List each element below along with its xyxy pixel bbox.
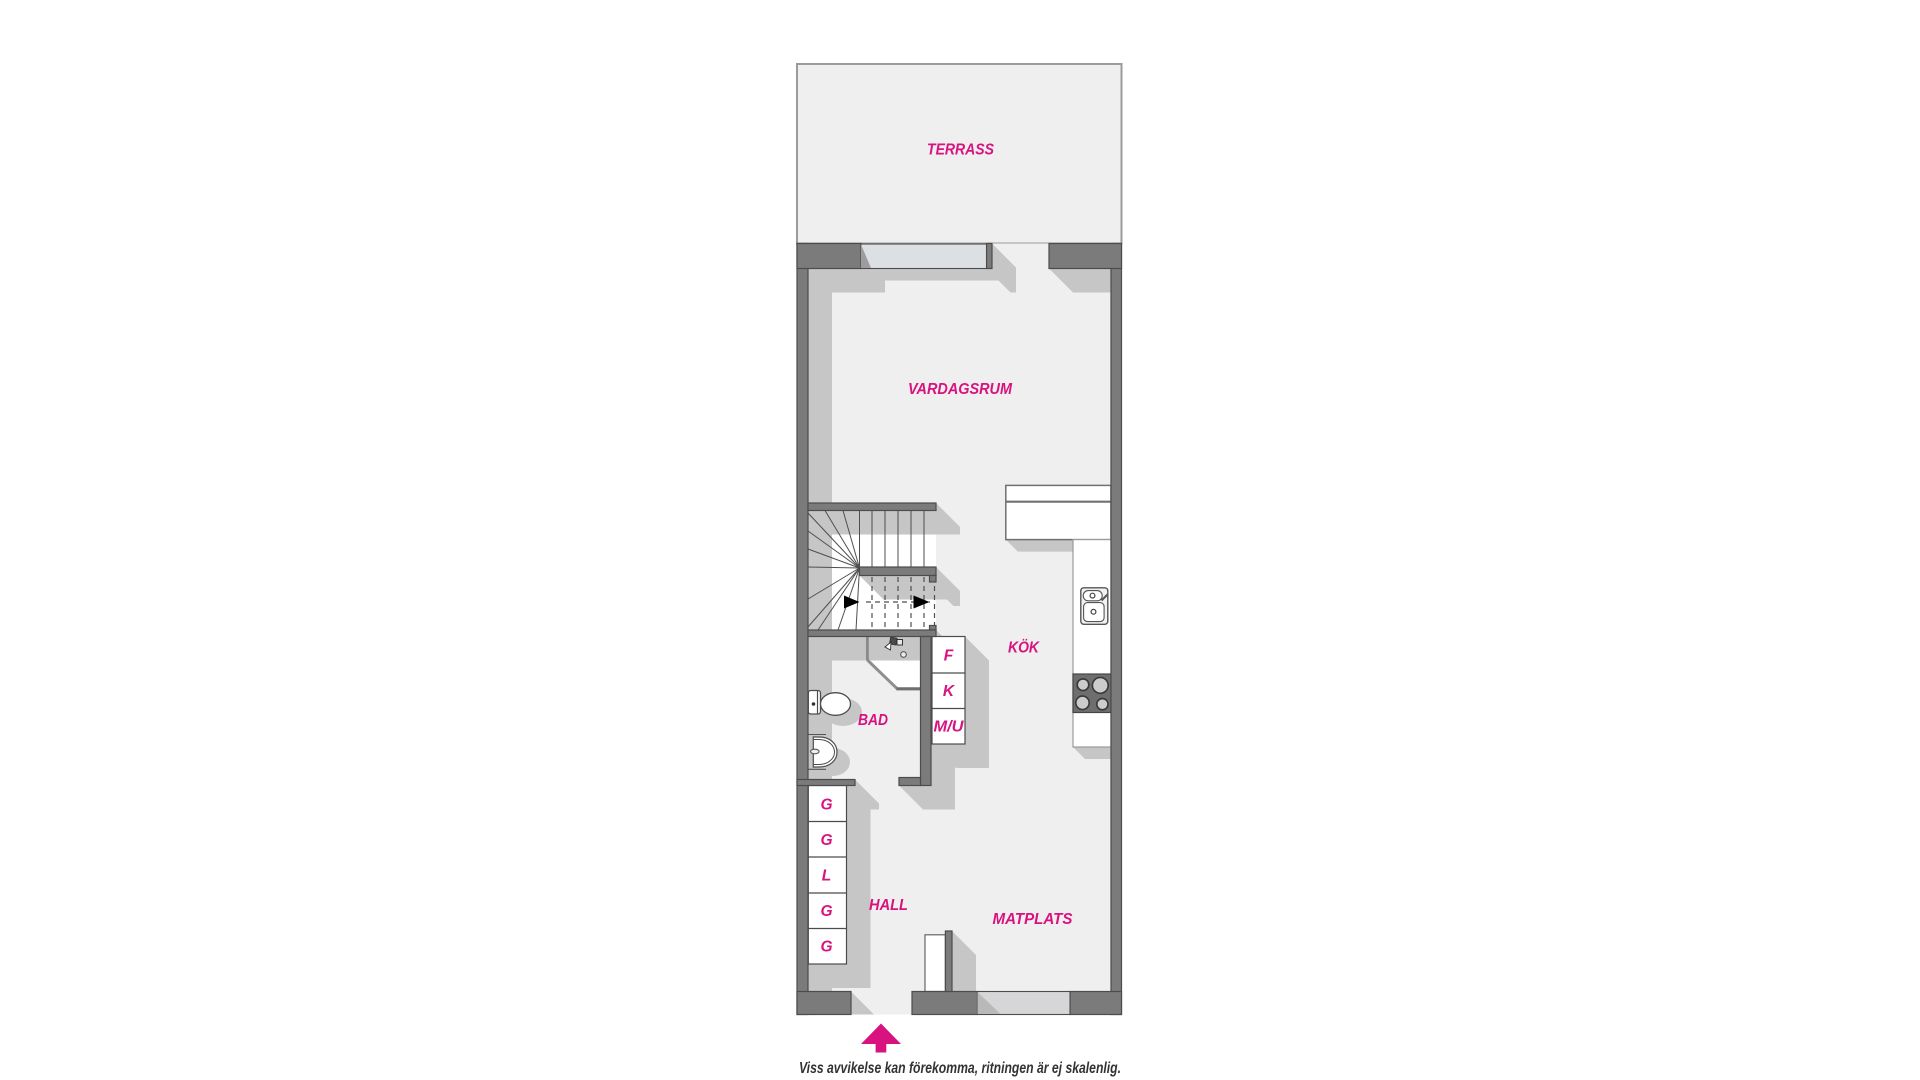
svg-text:KÖK: KÖK <box>1008 640 1041 657</box>
svg-text:TERRASS: TERRASS <box>927 142 995 159</box>
svg-text:L: L <box>822 868 831 885</box>
svg-text:G: G <box>820 832 832 849</box>
svg-text:G: G <box>820 797 832 814</box>
svg-text:HALL: HALL <box>869 897 908 914</box>
svg-text:K: K <box>943 683 956 700</box>
svg-text:F: F <box>944 648 954 665</box>
svg-text:G: G <box>820 939 832 956</box>
svg-text:BAD: BAD <box>858 712 888 729</box>
svg-text:G: G <box>820 903 832 920</box>
svg-text:VARDAGSRUM: VARDAGSRUM <box>908 381 1013 398</box>
svg-text:MATPLATS: MATPLATS <box>993 911 1074 928</box>
svg-text:M/U: M/U <box>934 719 965 736</box>
svg-text:Viss avvikelse kan förekomma,: Viss avvikelse kan förekomma, ritningen … <box>799 1060 1121 1077</box>
